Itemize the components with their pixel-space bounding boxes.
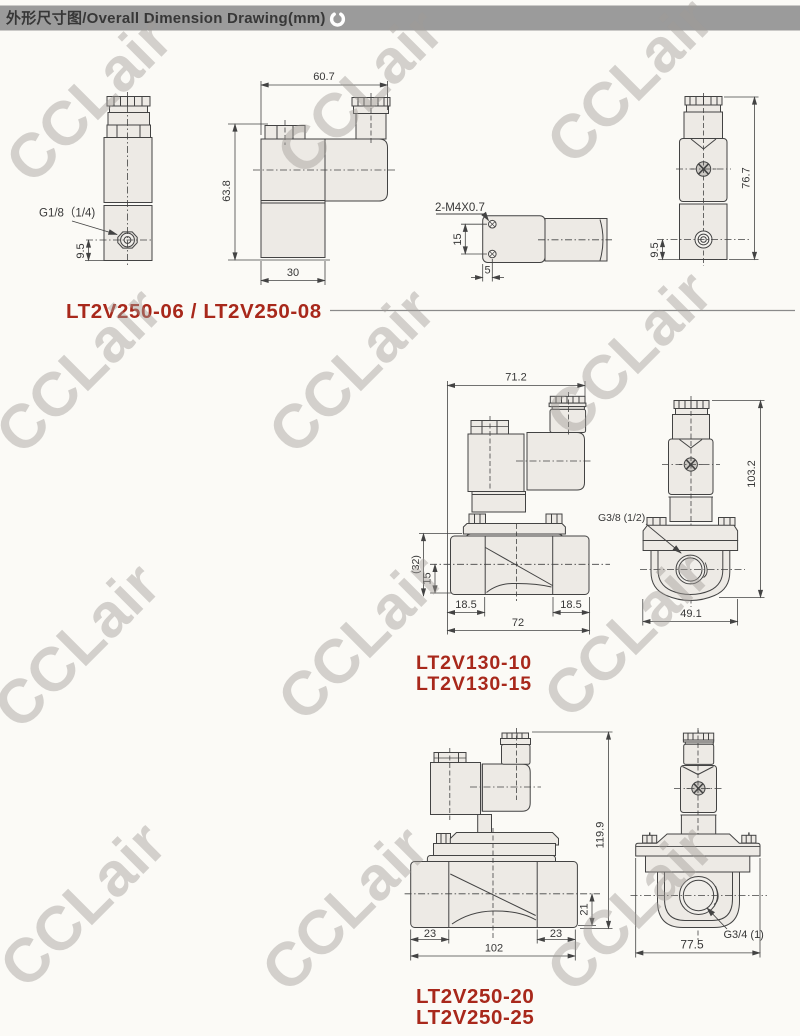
svg-text:G3/4 (1): G3/4 (1): [724, 929, 764, 941]
svg-text:103.2: 103.2: [746, 460, 758, 488]
svg-text:18.5: 18.5: [455, 599, 476, 611]
svg-text:2-M4X0.7: 2-M4X0.7: [435, 202, 485, 214]
svg-text:LT2V130-15: LT2V130-15: [416, 673, 532, 695]
svg-text:15: 15: [452, 233, 464, 245]
svg-text:23: 23: [424, 928, 436, 940]
svg-text:30: 30: [287, 267, 299, 279]
svg-text:LT2V130-10: LT2V130-10: [416, 652, 532, 674]
svg-text:LT2V250-25: LT2V250-25: [416, 1006, 534, 1029]
svg-text:72: 72: [512, 617, 524, 629]
svg-text:18.5: 18.5: [560, 599, 581, 611]
svg-text:76.7: 76.7: [741, 167, 753, 188]
svg-text:119.9: 119.9: [595, 822, 607, 849]
svg-text:LT2V250-20: LT2V250-20: [416, 985, 534, 1008]
svg-text:102: 102: [485, 943, 503, 955]
svg-text:外形尺寸图/Overall Dimension Drawin: 外形尺寸图/Overall Dimension Drawing(mm): [5, 9, 326, 27]
svg-text:9.5: 9.5: [649, 242, 661, 257]
svg-text:71.2: 71.2: [505, 372, 526, 384]
svg-text:G1/8（1/4): G1/8（1/4): [39, 207, 95, 220]
svg-text:63.8: 63.8: [221, 180, 233, 201]
svg-text:G3/8 (1/2): G3/8 (1/2): [598, 512, 645, 524]
svg-text:77.5: 77.5: [680, 938, 704, 952]
svg-text:9.5: 9.5: [75, 243, 87, 258]
svg-text:5: 5: [484, 265, 490, 277]
